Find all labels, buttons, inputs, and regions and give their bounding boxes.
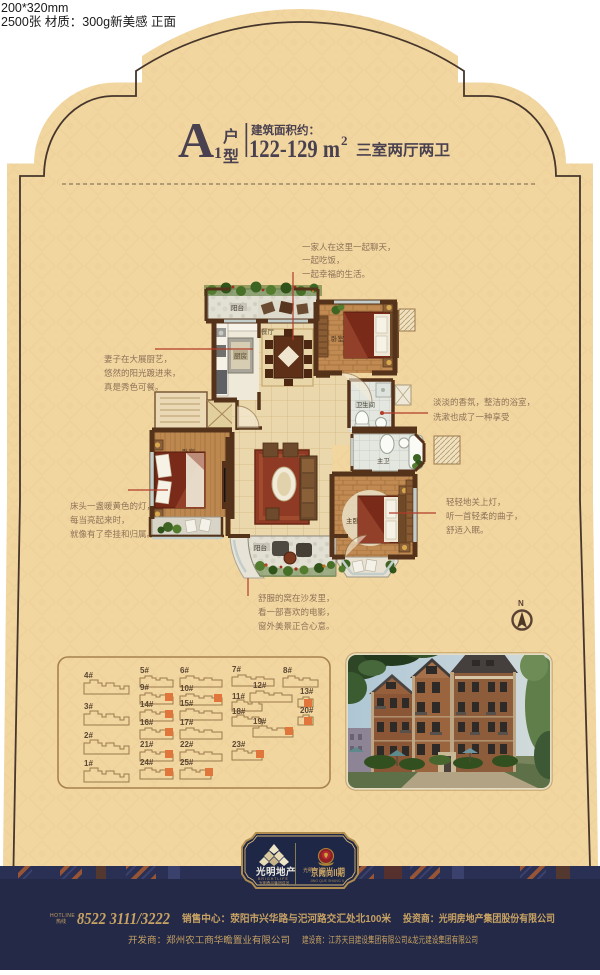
svg-text:2#: 2#: [84, 731, 93, 740]
svg-text:卧室: 卧室: [331, 334, 345, 343]
svg-text:洗漱也成了一种享受: 洗漱也成了一种享受: [433, 412, 510, 422]
svg-text:床头一盏暖黄色的灯，: 床头一盏暖黄色的灯，: [70, 501, 155, 511]
svg-text:20#: 20#: [300, 706, 314, 715]
svg-text:投资商：光明房地产集团股份有限公司: 投资商：光明房地产集团股份有限公司: [403, 912, 555, 925]
svg-text:3#: 3#: [84, 702, 93, 711]
svg-text:23#: 23#: [232, 740, 246, 749]
svg-text:4#: 4#: [84, 671, 93, 680]
svg-text:21#: 21#: [140, 740, 154, 749]
svg-text:8522 3111/3222: 8522 3111/3222: [77, 909, 170, 928]
svg-text:7#: 7#: [232, 665, 241, 674]
svg-text:17#: 17#: [180, 718, 194, 727]
svg-text:光明食品集团成员: 光明食品集团成员: [259, 881, 290, 886]
svg-text:三室两厅两卫: 三室两厅两卫: [356, 141, 450, 159]
svg-text:A: A: [178, 112, 214, 168]
svg-text:主卫: 主卫: [377, 456, 390, 465]
svg-text:6#: 6#: [180, 666, 189, 675]
svg-text:听一首轻柔的曲子，: 听一首轻柔的曲子，: [446, 511, 523, 521]
svg-text:淡淡的香氛，整洁的浴室，: 淡淡的香氛，整洁的浴室，: [433, 397, 535, 407]
svg-text:阳台: 阳台: [254, 543, 267, 552]
svg-text:1: 1: [214, 145, 222, 162]
svg-text:2: 2: [341, 133, 348, 148]
svg-text:一起幸福的生活。: 一起幸福的生活。: [302, 269, 370, 279]
svg-text:8#: 8#: [283, 666, 292, 675]
svg-text:看一部喜欢的电影，: 看一部喜欢的电影，: [258, 607, 335, 617]
svg-text:一家人在这里一起聊天，: 一家人在这里一起聊天，: [302, 242, 396, 252]
svg-text:5#: 5#: [140, 666, 149, 675]
svg-text:主卧: 主卧: [346, 516, 360, 525]
svg-text:15#: 15#: [180, 699, 194, 708]
svg-text:热线: 热线: [56, 918, 66, 925]
svg-text:9#: 9#: [140, 683, 149, 692]
svg-text:真是秀色可餐。: 真是秀色可餐。: [104, 382, 164, 392]
svg-text:开发商：郑州农工商华瞻置业有限公司: 开发商：郑州农工商华瞻置业有限公司: [128, 934, 290, 945]
svg-text:厨房: 厨房: [234, 351, 247, 360]
svg-text:户: 户: [223, 127, 239, 146]
svg-text:舒服的窝在沙发里，: 舒服的窝在沙发里，: [258, 593, 335, 603]
svg-text:2500张 材质：300g新美感 正面: 2500张 材质：300g新美感 正面: [1, 14, 176, 29]
svg-text:窗外美景正合心意。: 窗外美景正合心意。: [258, 621, 335, 631]
svg-text:轻轻地关上灯，: 轻轻地关上灯，: [446, 497, 506, 507]
svg-text:销售中心：荥阳市兴华路与汜河路交汇处北100米: 销售中心：荥阳市兴华路与汜河路交汇处北100米: [182, 912, 392, 925]
svg-text:每当亮起来时，: 每当亮起来时，: [70, 515, 130, 525]
svg-text:建设商：江苏天目建设集团有限公司&龙元建设集团有限公司: 建设商：江苏天目建设集团有限公司&龙元建设集团有限公司: [302, 934, 478, 945]
svg-text:悠然的阳光踱进来，: 悠然的阳光踱进来，: [104, 368, 181, 378]
svg-text:京阙尚II期: 京阙尚II期: [311, 866, 345, 879]
svg-text:舒适入眠。: 舒适入眠。: [446, 525, 489, 535]
svg-text:N: N: [518, 599, 524, 608]
svg-text:19#: 19#: [253, 717, 267, 726]
svg-text:1#: 1#: [84, 759, 93, 768]
svg-text:B R I G H T L I F E: B R I G H T L I F E: [258, 877, 288, 881]
svg-text:200*320mm: 200*320mm: [1, 1, 68, 15]
svg-text:一起吃饭，: 一起吃饭，: [302, 255, 345, 265]
svg-text:阳台: 阳台: [231, 303, 244, 312]
svg-text:16#: 16#: [140, 718, 154, 727]
svg-text:就像有了牵挂和归属。: 就像有了牵挂和归属。: [70, 529, 155, 539]
svg-text:妻子在大展厨艺，: 妻子在大展厨艺，: [104, 354, 172, 364]
svg-text:型: 型: [223, 148, 239, 166]
svg-text:12#: 12#: [253, 681, 267, 690]
svg-text:13#: 13#: [300, 687, 314, 696]
svg-text:10#: 10#: [180, 684, 194, 693]
svg-text:122-129 m: 122-129 m: [249, 134, 340, 163]
svg-text:14#: 14#: [140, 700, 154, 709]
svg-text:25#: 25#: [180, 758, 194, 767]
svg-text:22#: 22#: [180, 740, 194, 749]
svg-text:JING QUE SHANG II: JING QUE SHANG II: [310, 879, 344, 883]
svg-text:餐厅: 餐厅: [261, 327, 275, 336]
svg-text:24#: 24#: [140, 758, 154, 767]
